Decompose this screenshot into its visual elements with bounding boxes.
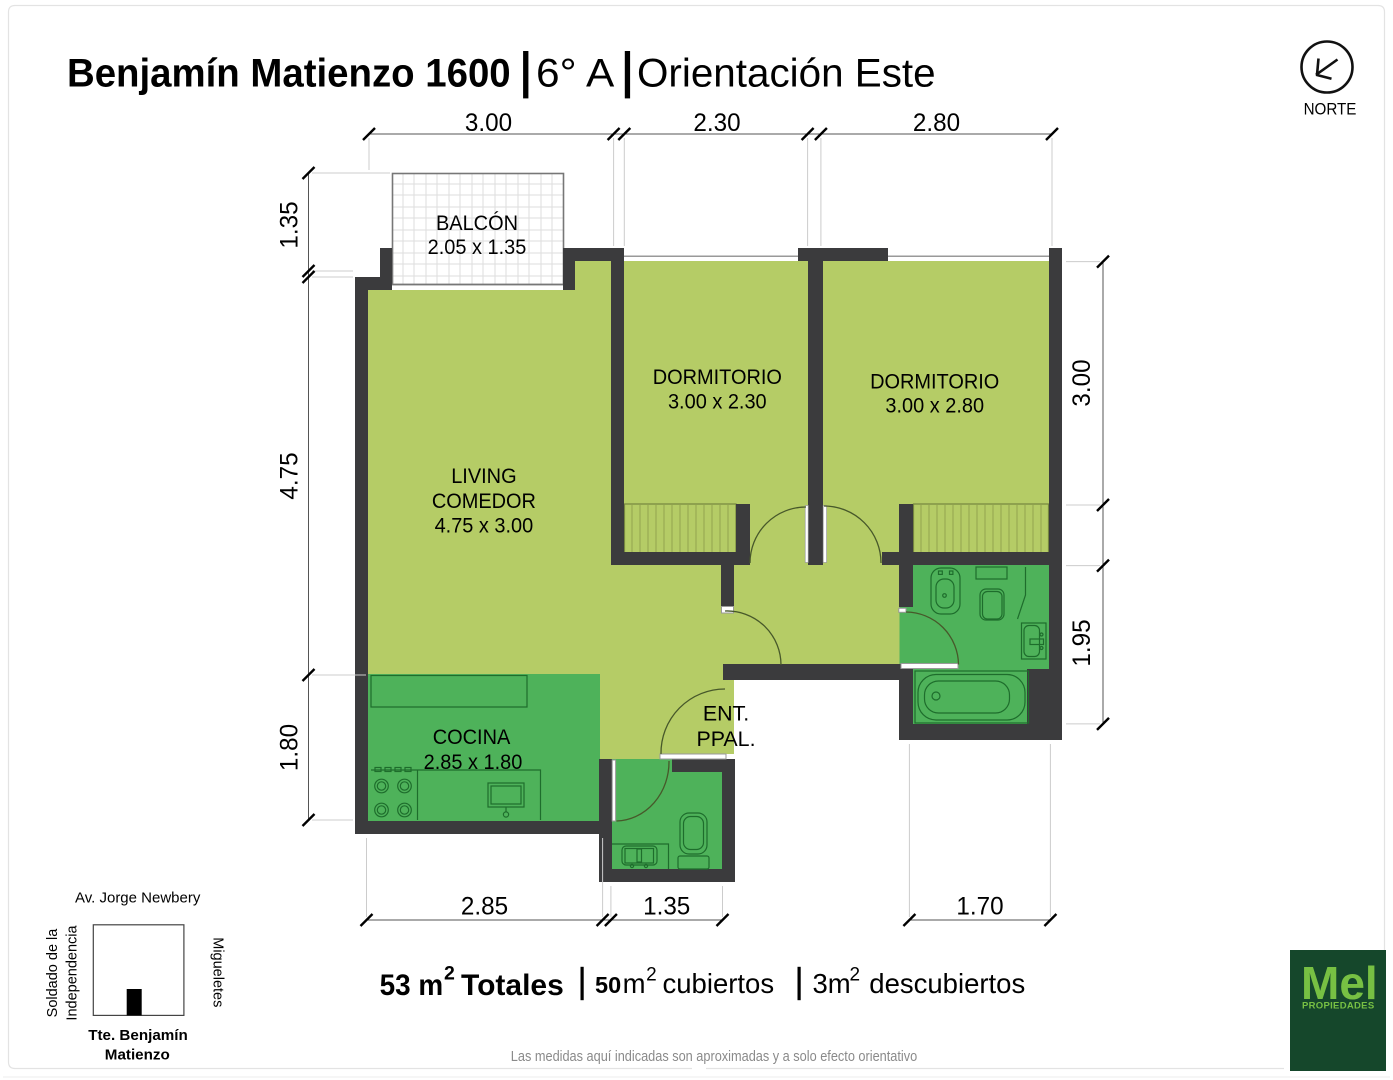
svg-text:1.35: 1.35 (643, 893, 690, 920)
svg-text:53 m: 53 m (380, 969, 444, 1002)
svg-text:2.80: 2.80 (913, 110, 960, 137)
svg-text:Orientación Este: Orientación Este (637, 51, 936, 96)
svg-text:1.70: 1.70 (956, 893, 1003, 920)
svg-text:Totales: Totales (461, 969, 564, 1002)
svg-text:1.35: 1.35 (276, 201, 303, 248)
svg-text:3m: 3m (813, 968, 851, 999)
svg-text:cubiertos: cubiertos (663, 968, 775, 999)
svg-text:1.80: 1.80 (276, 724, 303, 771)
svg-text:3.00 x 2.80: 3.00 x 2.80 (885, 394, 984, 418)
svg-text:Tte. Benjamín: Tte. Benjamín (88, 1027, 188, 1044)
svg-text:Las medidas aquí indicadas son: Las medidas aquí indicadas son aproximad… (511, 1047, 918, 1064)
svg-text:2: 2 (850, 964, 861, 985)
svg-text:4.75 x 3.00: 4.75 x 3.00 (435, 514, 534, 538)
svg-text:3.00: 3.00 (1069, 359, 1096, 406)
svg-text:6° A: 6° A (536, 51, 615, 96)
svg-text:50: 50 (595, 972, 621, 998)
svg-text:2.05 x 1.35: 2.05 x 1.35 (428, 236, 527, 260)
svg-text:Independencia: Independencia (65, 925, 81, 1021)
svg-text:LIVING: LIVING (451, 465, 516, 489)
svg-text:Matienzo: Matienzo (105, 1047, 170, 1064)
svg-text:descubiertos: descubiertos (869, 968, 1025, 999)
svg-text:2: 2 (444, 963, 455, 985)
svg-text:BALCÓN: BALCÓN (436, 212, 518, 236)
svg-text:2.30: 2.30 (693, 110, 740, 137)
svg-text:2: 2 (646, 964, 657, 985)
svg-text:3.00 x 2.30: 3.00 x 2.30 (668, 390, 767, 414)
svg-text:NORTE: NORTE (1304, 101, 1357, 119)
svg-text:3.00: 3.00 (465, 110, 512, 137)
svg-text:COCINA: COCINA (433, 726, 511, 750)
svg-text:1.95: 1.95 (1069, 619, 1096, 666)
svg-text:DORMITORIO: DORMITORIO (870, 370, 999, 394)
svg-text:Benjamín Matienzo 1600: Benjamín Matienzo 1600 (67, 52, 511, 96)
svg-text:Soldado de la: Soldado de la (45, 928, 61, 1018)
svg-text:Migueletes: Migueletes (210, 937, 226, 1007)
svg-text:2.85: 2.85 (461, 893, 508, 920)
svg-text:PROPIEDADES: PROPIEDADES (1302, 1000, 1374, 1011)
svg-text:Av. Jorge Newbery: Av. Jorge Newbery (75, 890, 201, 907)
svg-text:2.85 x 1.80: 2.85 x 1.80 (424, 751, 523, 775)
svg-text:4.75: 4.75 (276, 452, 303, 499)
svg-text:COMEDOR: COMEDOR (432, 490, 536, 514)
svg-text:m: m (623, 968, 646, 999)
svg-text:PPAL.: PPAL. (696, 727, 755, 751)
svg-text:DORMITORIO: DORMITORIO (653, 366, 782, 390)
svg-text:ENT.: ENT. (703, 702, 749, 726)
